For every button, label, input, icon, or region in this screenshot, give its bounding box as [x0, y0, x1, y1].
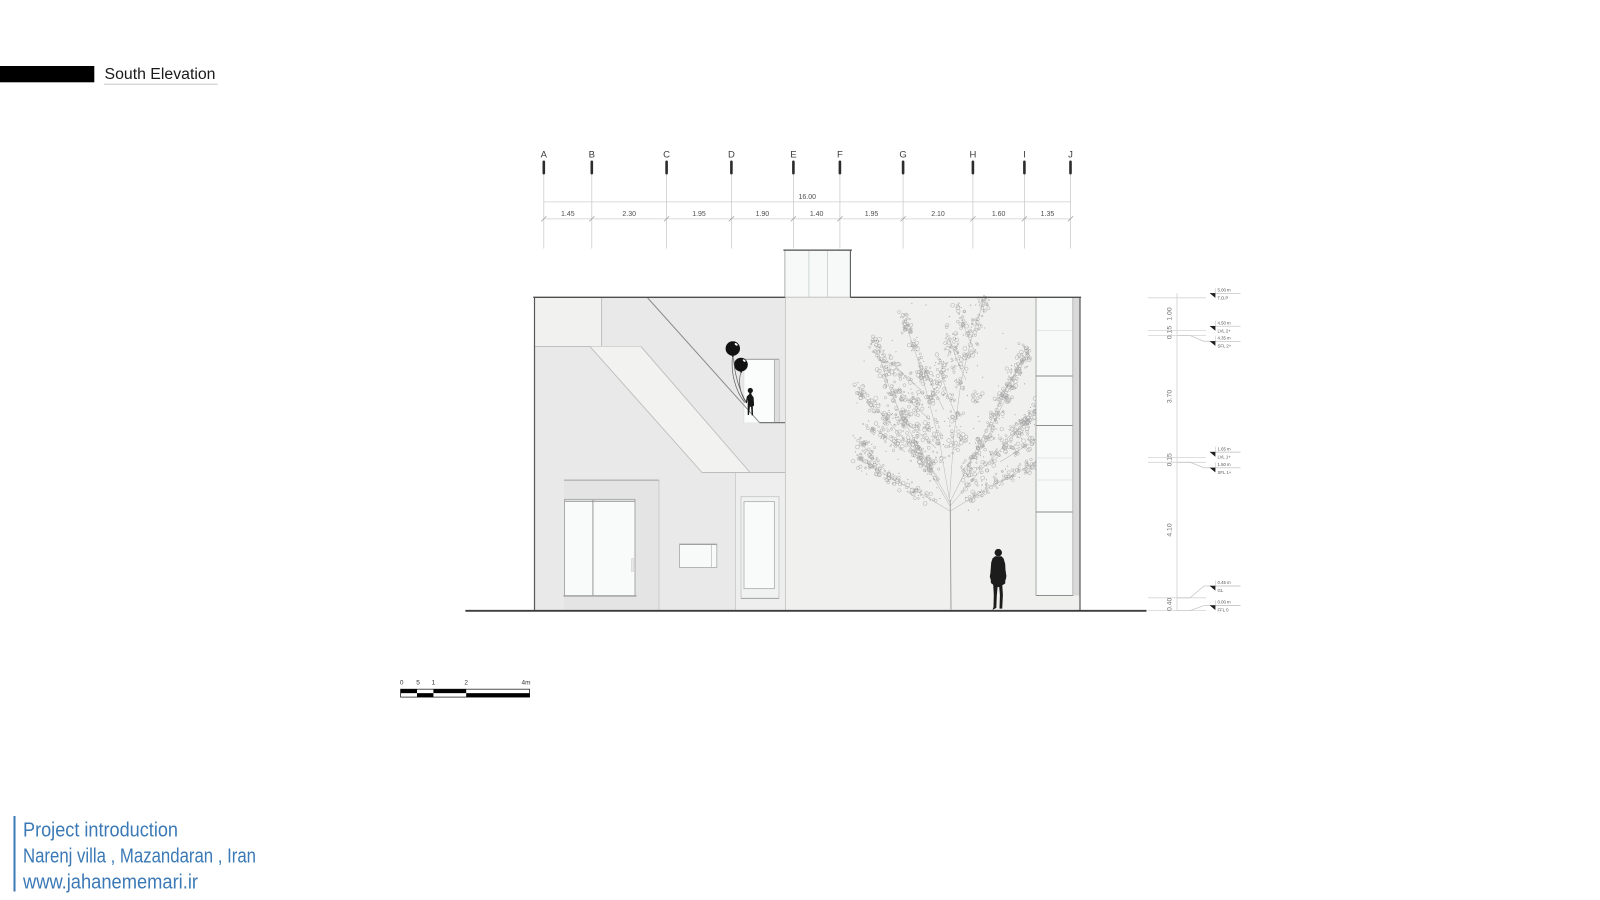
svg-text:0.00 m: 0.00 m: [1218, 600, 1232, 605]
svg-text:3.70: 3.70: [1167, 390, 1174, 403]
svg-text:F: F: [837, 150, 843, 161]
svg-text:0.15: 0.15: [1167, 453, 1174, 466]
svg-text:C: C: [663, 150, 670, 161]
svg-text:T.O.P: T.O.P: [1218, 296, 1229, 301]
svg-text:1.60: 1.60: [992, 211, 1006, 218]
svg-text:SFL 2+: SFL 2+: [1218, 344, 1232, 349]
svg-text:J: J: [1068, 150, 1073, 161]
svg-text:LVL 1+: LVL 1+: [1218, 454, 1232, 459]
svg-text:SFL 1+: SFL 1+: [1218, 470, 1232, 475]
svg-text:2: 2: [464, 680, 468, 687]
svg-text:1.65 m: 1.65 m: [1218, 446, 1232, 451]
svg-text:16.00: 16.00: [799, 194, 817, 201]
svg-text:GL: GL: [1218, 588, 1224, 593]
svg-text:B: B: [589, 150, 595, 161]
svg-text:1.35: 1.35: [1041, 211, 1055, 218]
svg-text:LVL 2+: LVL 2+: [1218, 328, 1232, 333]
svg-text:1.00: 1.00: [1167, 307, 1174, 320]
svg-text:4m: 4m: [521, 680, 530, 687]
svg-text:1.95: 1.95: [692, 211, 706, 218]
svg-text:5.00 m: 5.00 m: [1218, 288, 1232, 293]
svg-text:5: 5: [416, 680, 420, 687]
svg-text:0: 0: [400, 680, 404, 687]
svg-text:4.35 m: 4.35 m: [1218, 336, 1232, 341]
svg-text:0.15: 0.15: [1167, 326, 1174, 339]
svg-text:1.95: 1.95: [865, 211, 879, 218]
svg-text:2.30: 2.30: [622, 211, 636, 218]
svg-text:Narenj villa , Mazandaran , Ir: Narenj villa , Mazandaran , Iran: [23, 846, 256, 868]
svg-text:1.45: 1.45: [561, 211, 575, 218]
svg-text:H: H: [969, 150, 976, 161]
svg-text:1: 1: [432, 680, 436, 687]
svg-text:2.10: 2.10: [931, 211, 945, 218]
svg-text:D: D: [728, 150, 735, 161]
svg-text:G: G: [899, 150, 906, 161]
svg-text:1.40: 1.40: [810, 211, 824, 218]
svg-text:www.jahanememari.ir: www.jahanememari.ir: [22, 872, 198, 894]
svg-text:4.50 m: 4.50 m: [1218, 320, 1232, 325]
svg-text:South Elevation: South Elevation: [105, 66, 216, 83]
svg-text:FFL 0: FFL 0: [1218, 608, 1230, 613]
svg-text:I: I: [1023, 150, 1026, 161]
svg-text:0.45 m: 0.45 m: [1218, 580, 1232, 585]
svg-text:1.90: 1.90: [756, 211, 770, 218]
svg-text:E: E: [790, 150, 796, 161]
svg-text:1.50 m: 1.50 m: [1218, 462, 1232, 467]
svg-text:Project introduction: Project introduction: [23, 820, 178, 842]
svg-text:0.40: 0.40: [1167, 597, 1174, 610]
svg-text:A: A: [541, 150, 548, 161]
svg-text:4.10: 4.10: [1167, 523, 1174, 536]
